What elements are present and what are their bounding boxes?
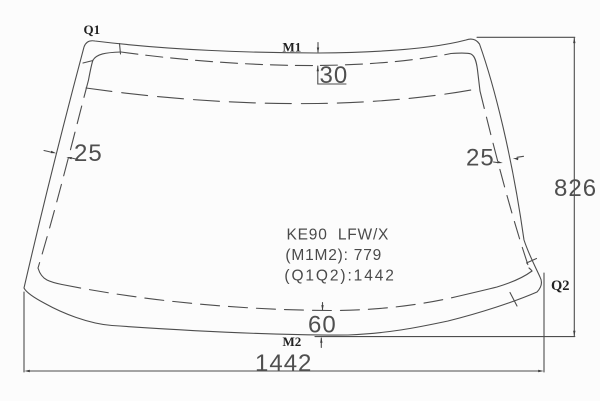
svg-text:826: 826 bbox=[554, 175, 597, 202]
svg-text:(M1M2): 779: (M1M2): 779 bbox=[285, 247, 382, 264]
svg-text:Q2: Q2 bbox=[551, 278, 570, 294]
svg-text:30: 30 bbox=[320, 62, 349, 89]
svg-text:M1: M1 bbox=[283, 40, 302, 55]
svg-text:Q1: Q1 bbox=[84, 22, 101, 37]
svg-text:60: 60 bbox=[308, 312, 337, 339]
svg-text:1442: 1442 bbox=[255, 350, 312, 377]
svg-text:KE90 LFW/X: KE90 LFW/X bbox=[287, 227, 390, 244]
svg-text:25: 25 bbox=[466, 145, 495, 172]
svg-text:25: 25 bbox=[74, 140, 103, 167]
svg-text:M2: M2 bbox=[283, 334, 302, 349]
svg-text:(Q1Q2):1442: (Q1Q2):1442 bbox=[284, 268, 395, 285]
